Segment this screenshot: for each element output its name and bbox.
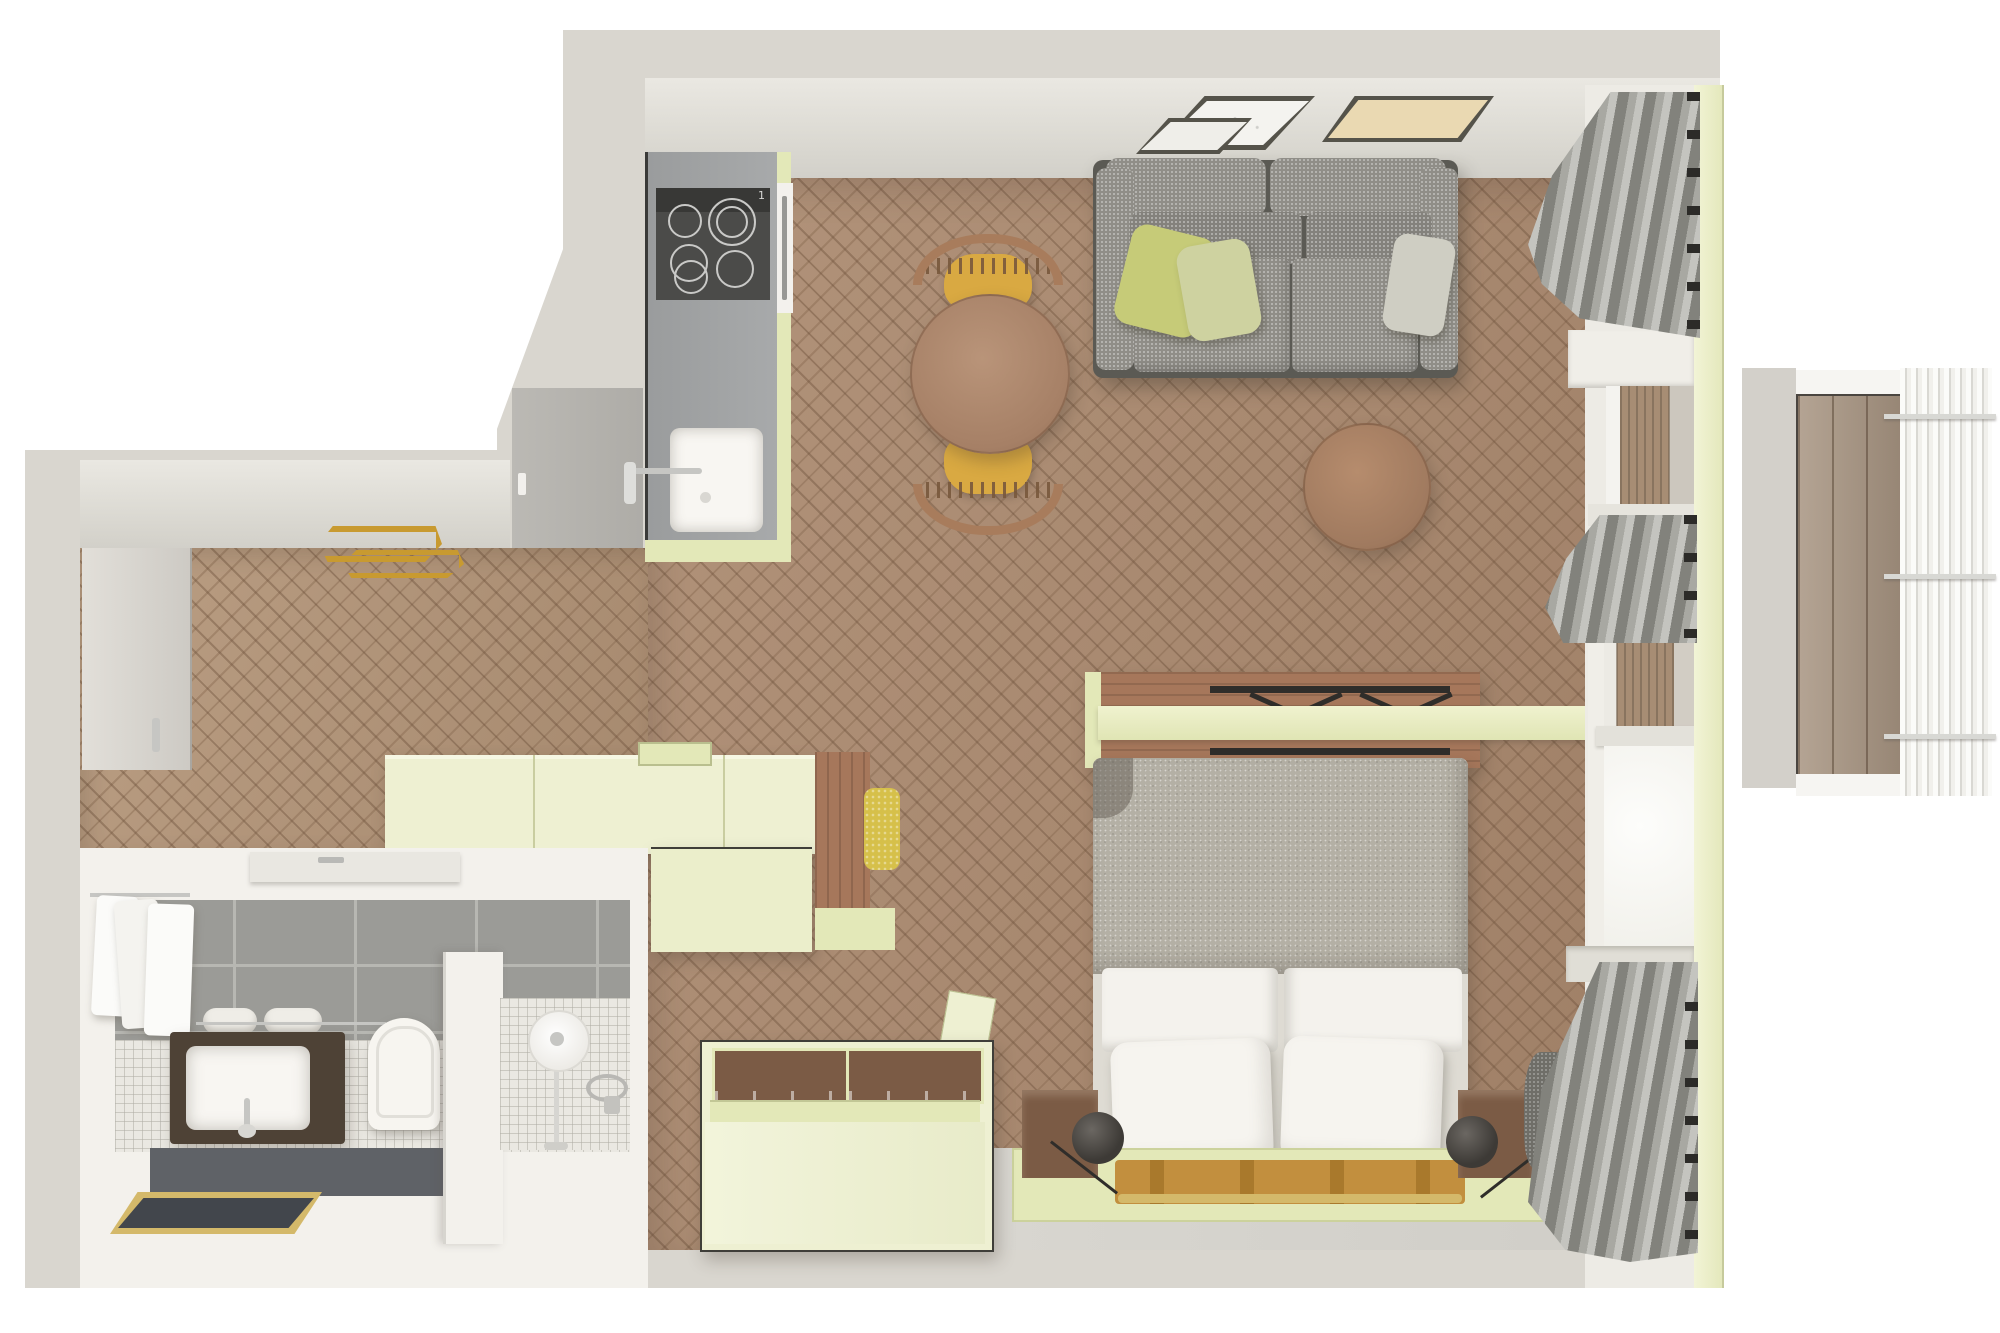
induction-cooktop: 1 (656, 188, 770, 300)
kitchen-green-bottom-strip (645, 540, 791, 562)
cooktop-burner-right-lower (716, 250, 754, 288)
balcony-deck-cap-bottom (1796, 774, 1900, 796)
curtain-bottom-rings (1685, 1002, 1698, 1262)
bathroom-door-handle (318, 857, 344, 863)
ball-lamp-right (1446, 1116, 1498, 1168)
bath-platform-step (150, 1148, 446, 1196)
picture-frame-beige-art (1328, 100, 1488, 138)
wardrobe-drawer-wood-left (712, 1048, 849, 1104)
vanity-towel-roll-1 (203, 1008, 257, 1034)
balcony-wall-strip (1742, 368, 1796, 788)
sink-drain (700, 492, 711, 503)
balcony-rail-bar-3 (1884, 734, 1996, 739)
dining-table (910, 294, 1070, 454)
window-1-sill (1568, 330, 1694, 388)
balcony-deck-cap-top (1796, 370, 1900, 394)
balcony-door-pane-top (1604, 640, 1694, 726)
bench-brass-bar (1118, 1194, 1462, 1203)
bathroom-door (250, 852, 460, 882)
toilet (368, 1018, 440, 1130)
fold-table-leg-bar-top (1210, 686, 1450, 693)
brass-frame-mirror (110, 1192, 322, 1234)
entrance-door-handle (152, 718, 160, 752)
vanity-faucet-knob (238, 1124, 256, 1138)
coffee-table (1303, 423, 1431, 551)
tall-cabinet-handle (518, 473, 526, 495)
entrance-door (82, 548, 192, 770)
ball-lamp-left (1072, 1112, 1124, 1164)
balcony-door-wood-streaks (1616, 640, 1674, 726)
wardrobe-drawer-wood-right (846, 1048, 984, 1104)
kitchen-sink (670, 428, 763, 532)
balcony-wood-deck (1796, 394, 1904, 778)
curtain-middle-rings (1684, 515, 1697, 643)
desk-nook-shelf (815, 908, 895, 950)
desk-nook-wood-panel (815, 752, 870, 910)
sideboard-seam-2 (723, 755, 725, 850)
towel-hanging-3 (144, 903, 195, 1037)
sink-faucet (626, 468, 702, 474)
sink-faucet-base (624, 462, 636, 504)
shower-soap-holder (604, 1096, 620, 1114)
sideboard-lower-cabinet (651, 847, 812, 952)
sideboard-upper (385, 755, 815, 854)
desk-nook-pouf (864, 788, 900, 870)
balcony-rail-bar-2 (1884, 574, 1996, 579)
fold-table-green-band (1098, 706, 1592, 740)
cooktop-burner-left-lower2 (674, 260, 708, 294)
fold-table-leg-bar-bottom (1210, 748, 1450, 755)
window-1-glass (1606, 386, 1694, 504)
hallway-top-wall (80, 460, 510, 548)
vanity-towel-rail (196, 1022, 386, 1025)
shower-foot-plate (544, 1142, 568, 1150)
vanity-towel-roll-2 (264, 1008, 322, 1034)
balcony-door-crossbar (1596, 726, 1694, 746)
cooktop-burner-large-inner (716, 206, 748, 238)
bed-blanket (1093, 758, 1468, 974)
shower-partition-wall (443, 952, 503, 1244)
balcony-railing (1900, 368, 1992, 796)
floor-plan-canvas: 1 (0, 0, 2000, 1333)
balcony-door-pane-bottom (1604, 746, 1694, 946)
oven-handle (782, 196, 787, 300)
sideboard-seam-1 (533, 755, 535, 850)
toilet-seat-ring (376, 1026, 434, 1118)
wardrobe-front-face (705, 1122, 985, 1244)
mirror-glass (118, 1198, 314, 1228)
balcony-rail-bar-1 (1884, 414, 1996, 419)
wardrobe-shelf-band (710, 1100, 980, 1124)
curtain-top-rings (1687, 92, 1700, 338)
pendant-lamp-inner-icon (336, 550, 464, 578)
cooktop-burner-small (668, 204, 702, 238)
cooktop-indicator-label: 1 (758, 190, 765, 201)
wardrobe-box (700, 1040, 994, 1252)
shower-head-hub (550, 1032, 564, 1046)
sideboard-top-tray (638, 742, 712, 766)
window-1-wood-streaks (1620, 386, 1670, 504)
